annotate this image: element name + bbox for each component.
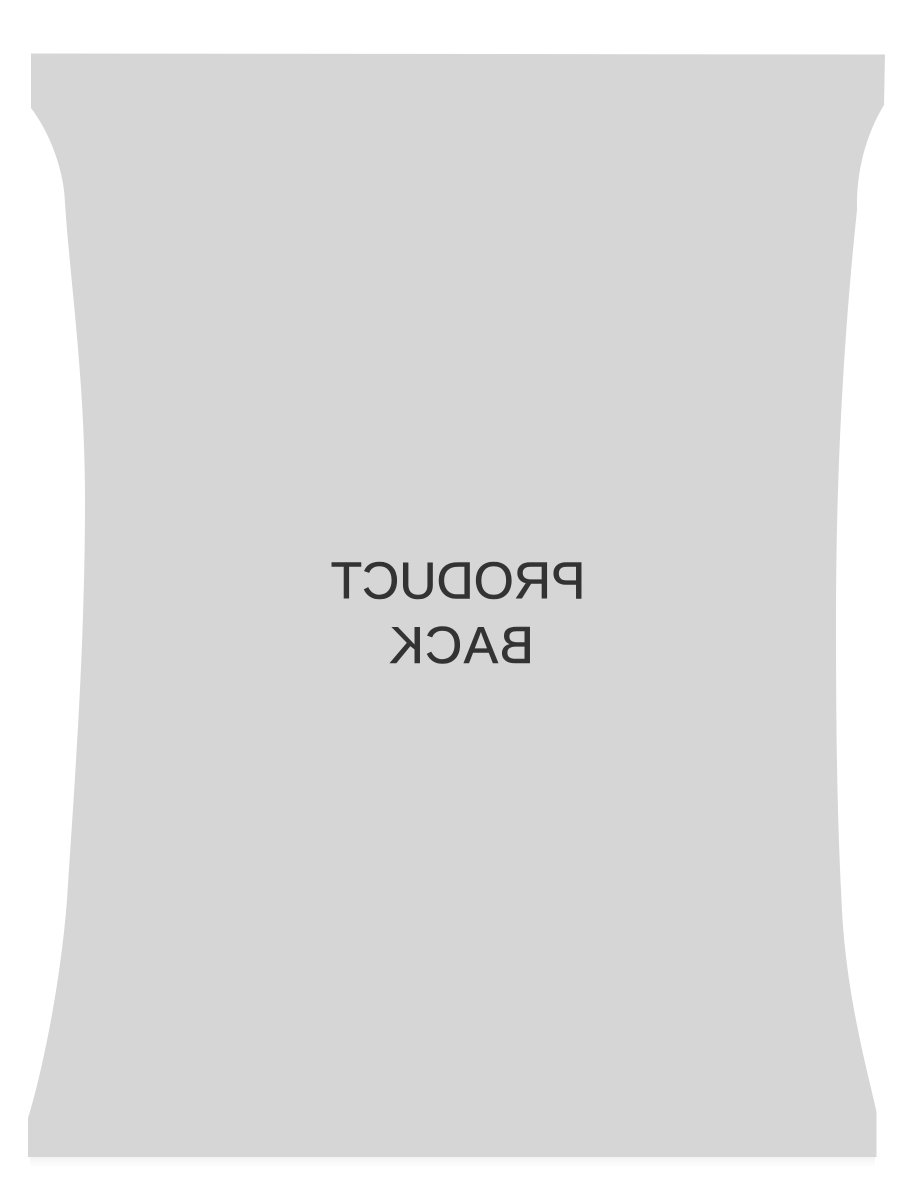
- svg-text:PRODUCT: PRODUCT: [331, 552, 586, 610]
- svg-text:BACK: BACK: [388, 616, 534, 674]
